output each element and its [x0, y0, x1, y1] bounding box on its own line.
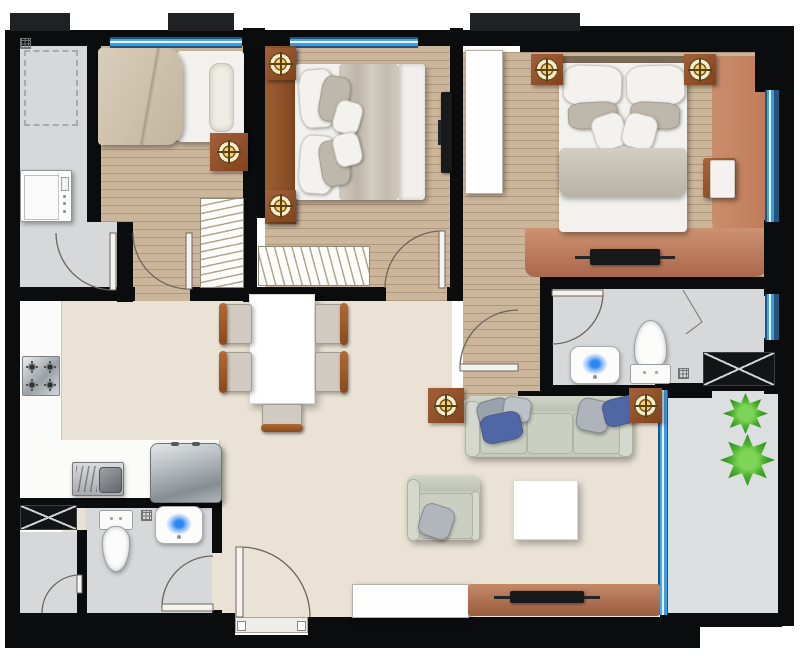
bathroom2-floor-drain	[141, 510, 152, 521]
wall-bottom-left	[5, 613, 235, 648]
wall-master-bath	[540, 277, 782, 289]
wall-bath2-right-a	[212, 498, 222, 553]
balcony-floor	[668, 391, 778, 613]
window-bedroom1	[110, 37, 242, 48]
dining-chair-3	[315, 304, 345, 344]
ceiling-light-bedroom1	[210, 133, 248, 171]
kitchen-sink	[72, 462, 124, 496]
wall-left	[5, 30, 20, 648]
master-side-table	[703, 158, 736, 198]
wall-bed1-bed2	[243, 28, 265, 218]
coffee-table	[513, 480, 578, 540]
floor-plan	[0, 0, 800, 667]
wardrobe-master	[465, 50, 503, 194]
utility-appliance-outline	[24, 50, 78, 126]
double-bed	[295, 64, 425, 200]
tv-cabinet	[352, 584, 469, 618]
ceiling-light-bedroom2-bottom	[265, 190, 296, 222]
wall-under-entrance	[235, 635, 310, 648]
hallway-floor	[463, 289, 540, 400]
window-master	[765, 90, 779, 222]
utility-meter-grid	[20, 38, 31, 49]
ceiling-light-bedroom2-top	[265, 48, 296, 80]
wardrobe-closet	[258, 246, 370, 286]
wardrobe-bedroom1	[200, 198, 244, 288]
wall-balcony-bottom	[660, 613, 782, 627]
wall-right	[778, 26, 794, 626]
dining-chair-5	[262, 404, 302, 429]
tv-bedroom2	[441, 92, 452, 173]
bathroom2-sink	[155, 506, 203, 544]
bathroom1-floor-drain	[678, 368, 689, 379]
window-bathroom1	[765, 294, 779, 340]
ceiling-light-master-right	[684, 54, 716, 85]
shower-room-floor	[20, 532, 77, 618]
bathroom2-toilet	[99, 510, 131, 570]
ceiling-light-living-right	[629, 388, 662, 423]
wall-shower-divider	[77, 530, 87, 618]
dining-table	[249, 294, 315, 404]
pillar-1	[10, 13, 70, 31]
master-bed	[558, 56, 688, 232]
dining-chair-2	[222, 352, 252, 392]
single-bed	[98, 48, 244, 145]
entrance-sill	[235, 617, 308, 633]
ceiling-light-master-left	[531, 54, 563, 85]
tv-master	[590, 249, 660, 265]
tv-living	[510, 591, 584, 603]
window-bedroom2	[290, 37, 418, 48]
wall-bed2-corner	[447, 287, 463, 301]
wall-hall-bath	[540, 288, 553, 400]
bathroom1-toilet	[630, 320, 669, 384]
window-balcony	[658, 390, 668, 615]
dining-chair-4	[315, 352, 345, 392]
duct-shaft-bathroom1	[703, 352, 775, 386]
wall-bottom-mid	[308, 617, 700, 648]
pillar-3	[470, 13, 580, 31]
wall-corner-tr	[755, 26, 794, 92]
dining-chair-1	[222, 304, 252, 344]
ceiling-light-living-left	[428, 388, 464, 423]
pillar-2	[168, 13, 234, 31]
duct-shaft-bathroom2	[20, 505, 77, 530]
bathroom1-sink	[570, 346, 620, 384]
wall-bath2-right-b	[212, 610, 222, 618]
washing-machine	[20, 170, 72, 222]
cooktop	[22, 356, 60, 396]
wall-utility-bottom	[5, 287, 135, 301]
refrigerator	[150, 443, 222, 503]
